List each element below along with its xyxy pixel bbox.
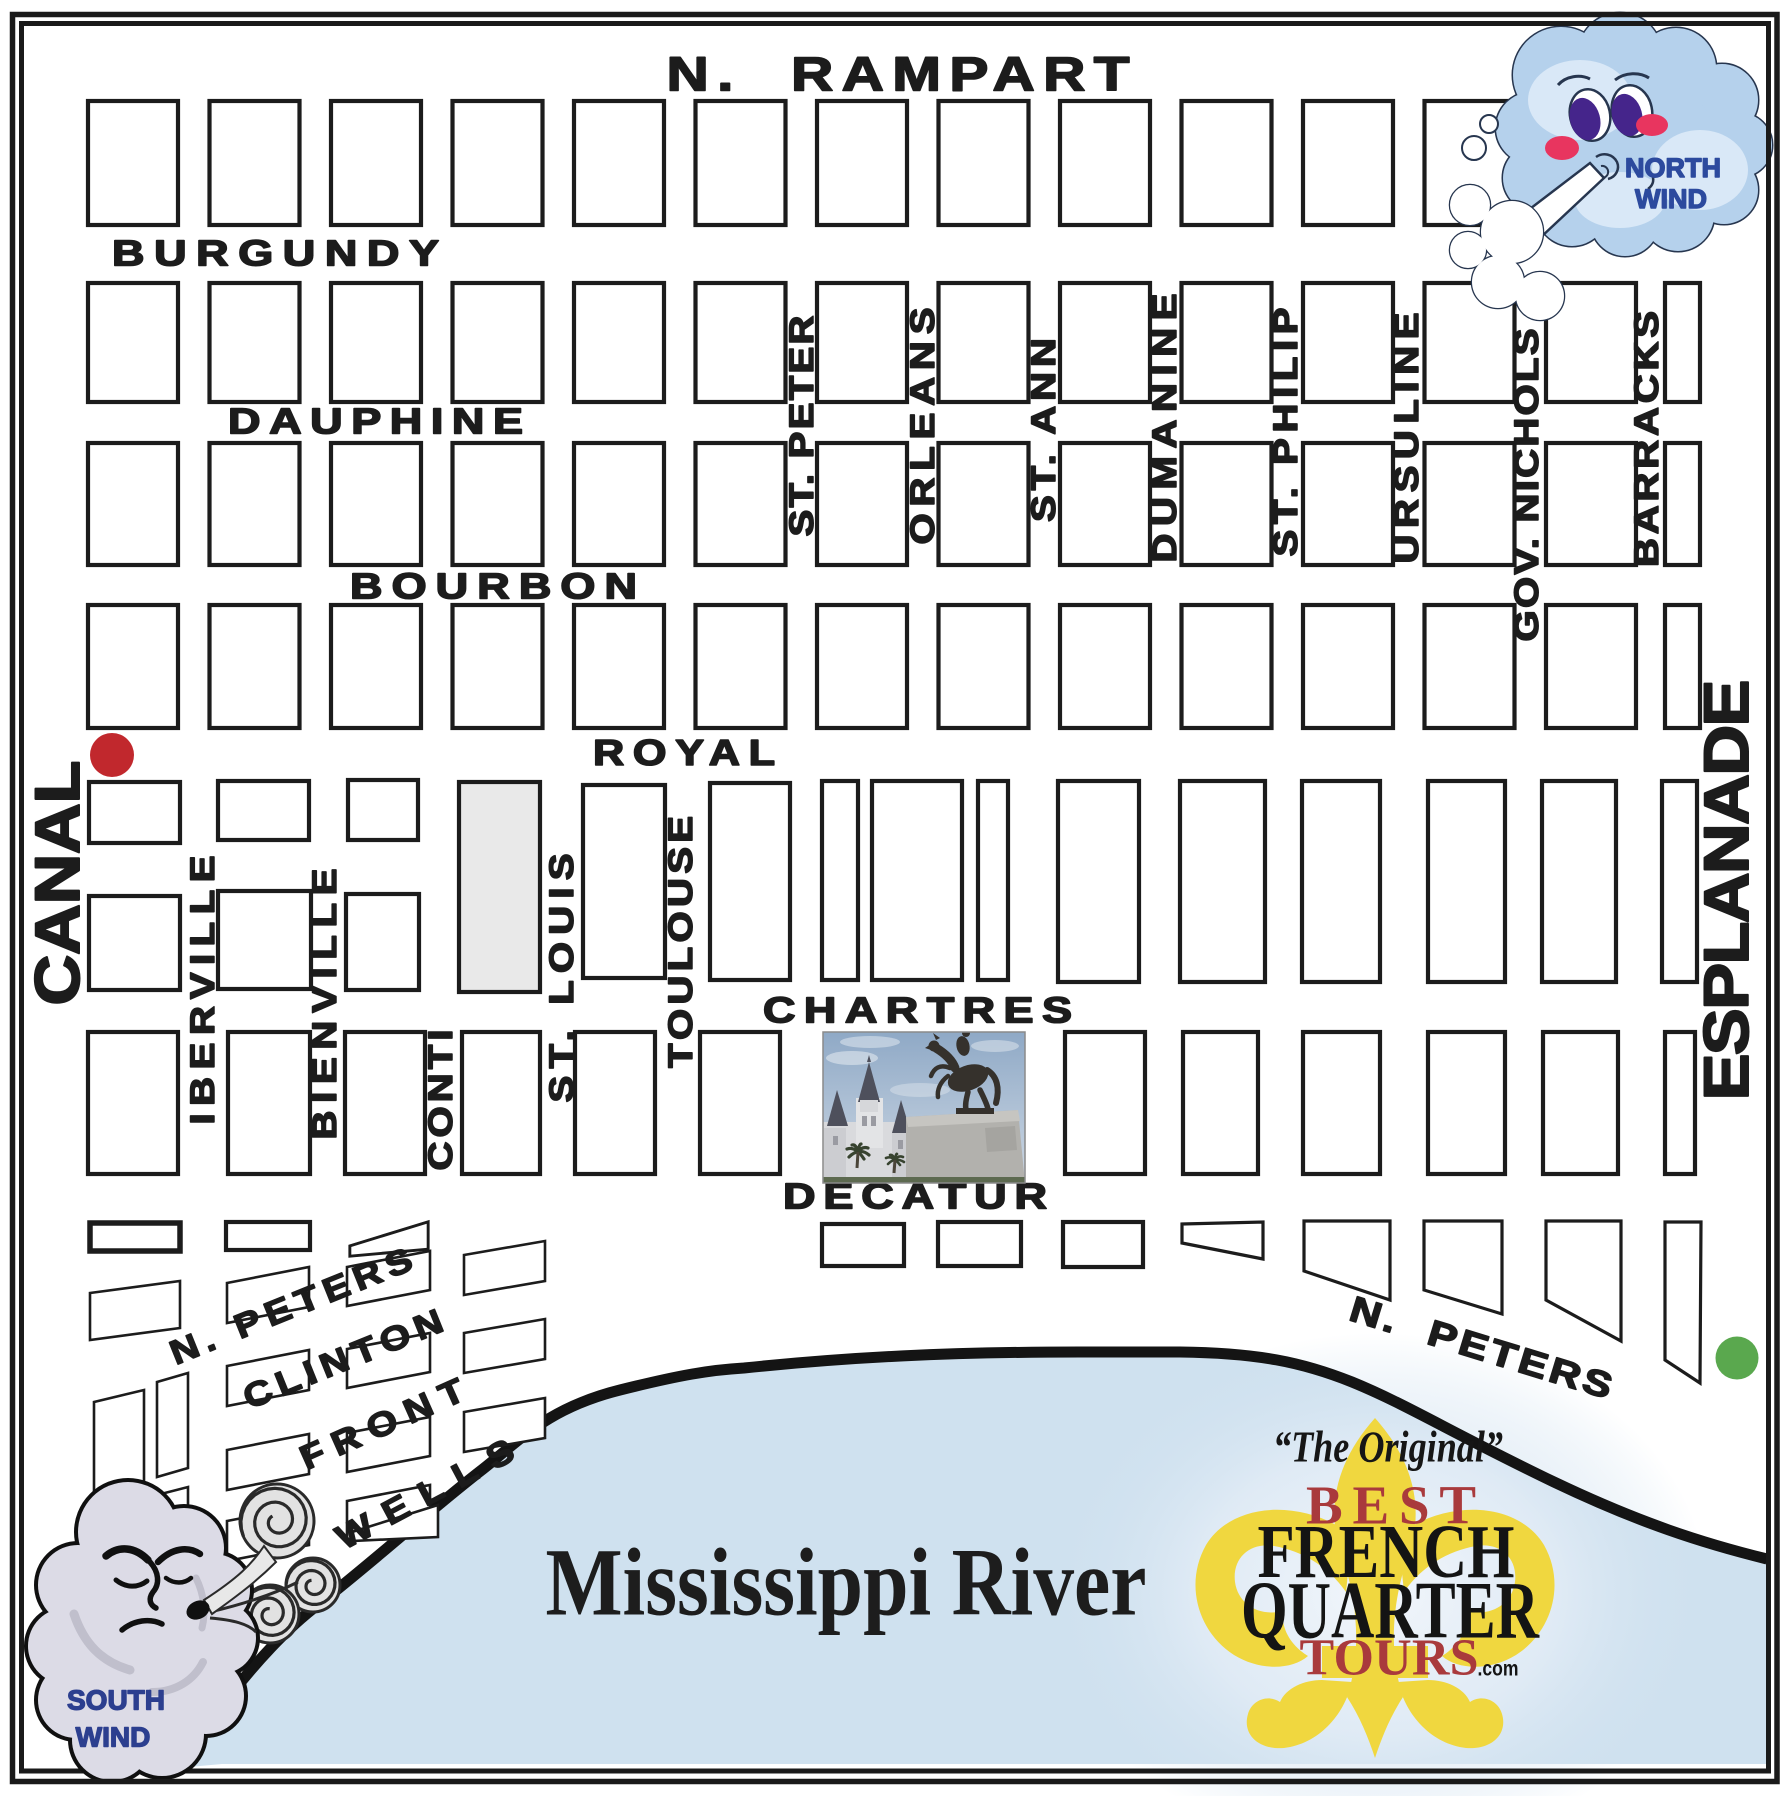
svg-text:ESPLANADE: ESPLANADE: [1692, 679, 1763, 1100]
svg-text:ST. PHILIP: ST. PHILIP: [1266, 308, 1304, 557]
svg-text:SOUTH: SOUTH: [67, 1685, 165, 1716]
svg-text:DUMANINE: DUMANINE: [1145, 293, 1183, 562]
svg-text:GOV. NICHOLS: GOV. NICHOLS: [1507, 328, 1545, 641]
svg-text:NORTH: NORTH: [1625, 153, 1721, 183]
svg-text:URSULINE: URSULINE: [1387, 313, 1425, 564]
svg-text:WIND: WIND: [76, 1722, 151, 1753]
svg-text:ST. ANN: ST. ANN: [1024, 338, 1062, 522]
svg-text:ROYAL: ROYAL: [593, 733, 775, 773]
svg-text:BOURBON: BOURBON: [350, 566, 637, 607]
svg-text:TOURS: TOURS: [1300, 1630, 1479, 1687]
svg-text:IBERVILLE: IBERVILLE: [183, 855, 221, 1124]
svg-text:BARRACKS: BARRACKS: [1627, 311, 1665, 567]
svg-text:TOULOUSE: TOULOUSE: [661, 816, 699, 1068]
svg-text:.com: .com: [1478, 1658, 1519, 1681]
svg-text:DAUPHINE: DAUPHINE: [228, 401, 523, 442]
svg-text:WIND: WIND: [1635, 184, 1707, 214]
svg-text:ST. PETER: ST. PETER: [782, 315, 820, 536]
svg-text:CANAL: CANAL: [23, 761, 94, 1006]
svg-text:Mississippi River: Mississippi River: [546, 1529, 1147, 1636]
svg-text:“The Original”: “The Original”: [1273, 1423, 1503, 1472]
svg-text:BIENVILLE: BIENVILLE: [305, 868, 343, 1139]
svg-text:CHARTRES: CHARTRES: [763, 990, 1072, 1031]
svg-text:CONTI: CONTI: [421, 1029, 459, 1170]
